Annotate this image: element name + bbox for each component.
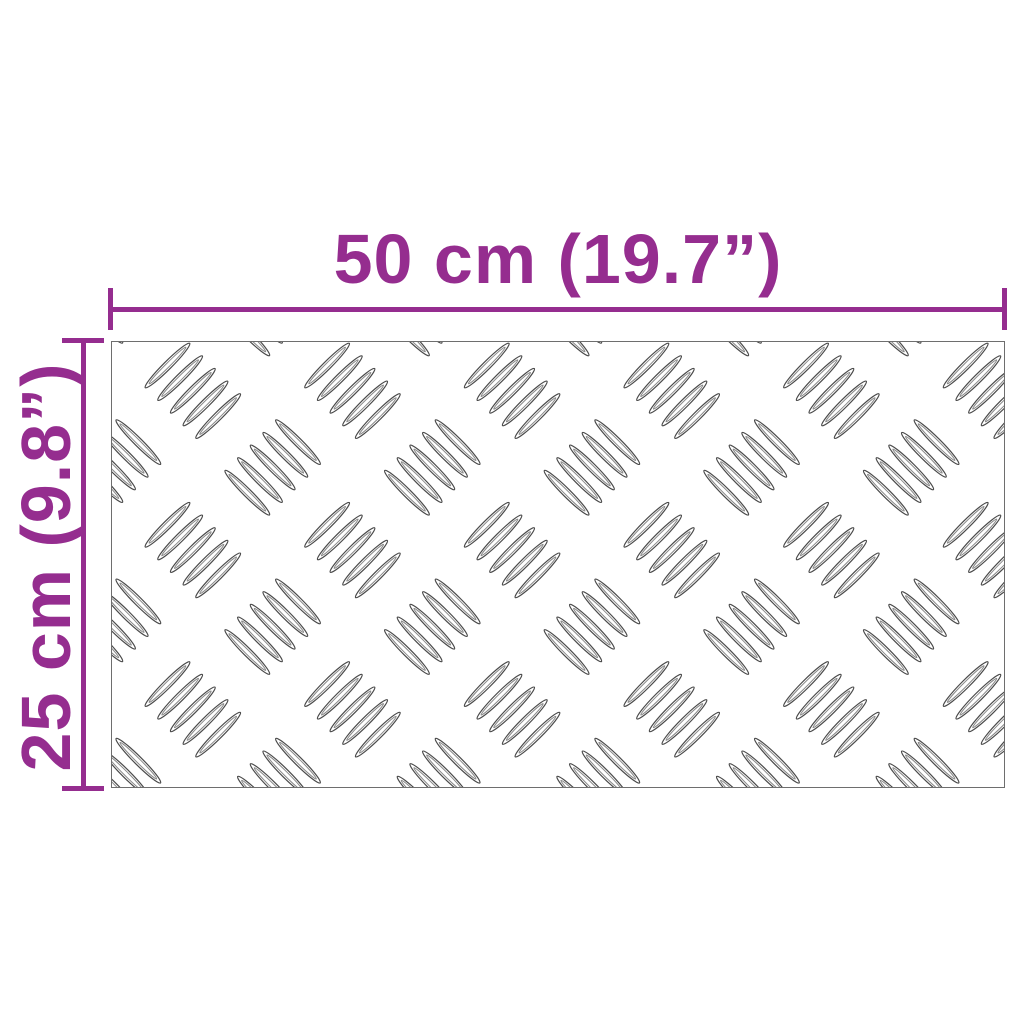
- height-dimension-line: [81, 341, 86, 788]
- height-dimension-label: 25 cm (9.8”): [11, 363, 81, 772]
- checker-plate-panel: [111, 341, 1005, 788]
- dimension-diagram: 50 cm (19.7”) 25 cm (9.8”): [0, 0, 1024, 1024]
- width-dimension-line: [111, 307, 1005, 312]
- height-dimension-top-tick: [62, 338, 104, 343]
- checker-plate-pattern: [112, 342, 1004, 787]
- width-dimension-left-tick: [108, 288, 113, 330]
- width-dimension-label: 50 cm (19.7”): [111, 224, 1005, 294]
- width-dimension-right-tick: [1002, 288, 1007, 330]
- height-dimension-bottom-tick: [62, 786, 104, 791]
